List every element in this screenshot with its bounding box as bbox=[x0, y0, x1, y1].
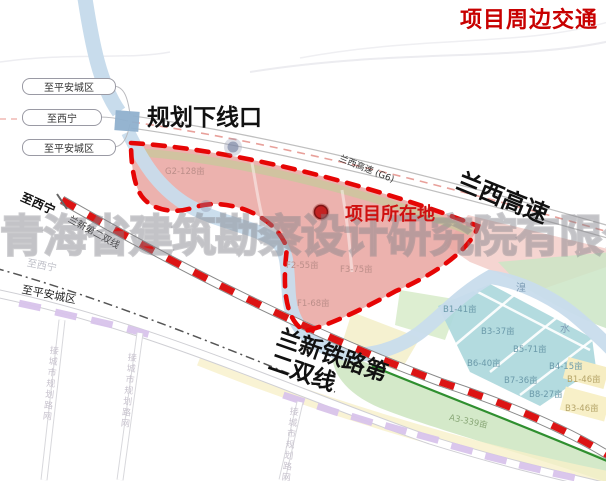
minor-dot bbox=[200, 200, 212, 212]
contour-line bbox=[0, 52, 170, 62]
parcel-label: B4-15亩 bbox=[549, 363, 583, 373]
river-name-char: 水 bbox=[560, 324, 570, 336]
road-sign-label: 至平安城区 bbox=[44, 79, 94, 94]
parcel-label: B3-37亩 bbox=[481, 328, 515, 338]
parcel-label: B8-27亩 bbox=[529, 391, 563, 401]
planned-exit-dot bbox=[224, 138, 242, 156]
bridge bbox=[114, 110, 139, 132]
project-location-label: 项目所在地 bbox=[345, 205, 435, 226]
contour-line bbox=[250, 40, 606, 72]
road-sign-label: 至平安城区 bbox=[44, 140, 94, 155]
parcel-label: G2-128亩 bbox=[165, 168, 205, 178]
page-title: 项目周边交通 bbox=[460, 8, 598, 33]
road-sign-to-pingan-mid: 至平安城区 bbox=[22, 139, 116, 156]
planned-exit-label: 规划下线口 bbox=[147, 105, 262, 131]
traffic-map: 项目周边交通 至平安城区 至西宁 至平安城区 规划下线口 项目所在地 兰西高速 … bbox=[0, 0, 606, 481]
project-location-dot bbox=[313, 204, 330, 221]
parcel-label: B1-41亩 bbox=[443, 306, 477, 316]
parcel-label: B6-40亩 bbox=[467, 360, 501, 370]
parcel-label: B1-46亩 bbox=[567, 376, 601, 386]
parcel-label: F3-75亩 bbox=[340, 266, 373, 276]
parcel-label: F1-68亩 bbox=[297, 300, 330, 310]
map-canvas bbox=[0, 0, 606, 481]
parcel-label: B7-36亩 bbox=[504, 377, 538, 387]
parcel-label: F2-55亩 bbox=[286, 262, 319, 272]
road-sign-label: 至西宁 bbox=[47, 110, 77, 125]
parcel-label: B5-71亩 bbox=[513, 346, 547, 356]
road-sign-to-xining: 至西宁 bbox=[22, 109, 102, 126]
parcel-label: B3-46亩 bbox=[565, 405, 599, 415]
road-sign-to-pingan-top: 至平安城区 bbox=[22, 78, 116, 95]
river-name-char: 湟 bbox=[516, 283, 526, 295]
